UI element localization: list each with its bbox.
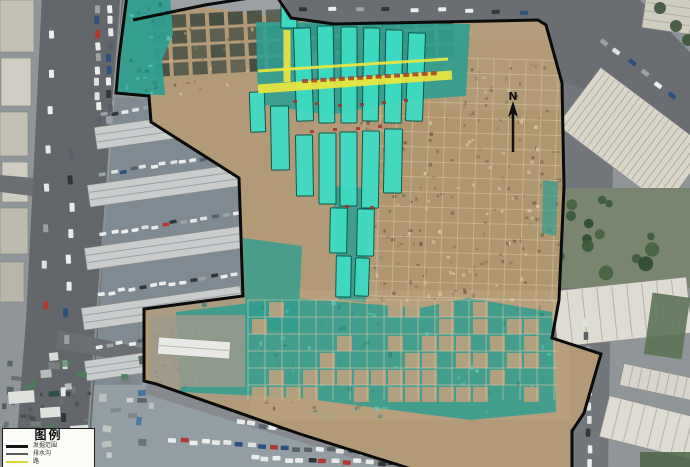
legend-item-1: 排水沟	[6, 450, 91, 458]
map-legend: 图例 发掘范围排水沟路	[2, 428, 95, 467]
legend-swatch	[6, 445, 28, 448]
legend-item-2: 路	[6, 458, 91, 466]
legend-item-label: 路	[33, 459, 39, 465]
site-aerial-map: N	[0, 0, 690, 467]
legend-items: 发掘范围排水沟路	[6, 442, 91, 466]
legend-title: 图例	[6, 429, 91, 442]
screenshot-stage: N 图例 发掘范围排水沟路	[0, 0, 690, 467]
legend-item-label: 发掘范围	[33, 443, 57, 449]
legend-item-label: 排水沟	[33, 451, 51, 457]
legend-swatch	[6, 453, 28, 455]
legend-swatch	[6, 461, 28, 463]
legend-item-0: 发掘范围	[6, 442, 91, 450]
